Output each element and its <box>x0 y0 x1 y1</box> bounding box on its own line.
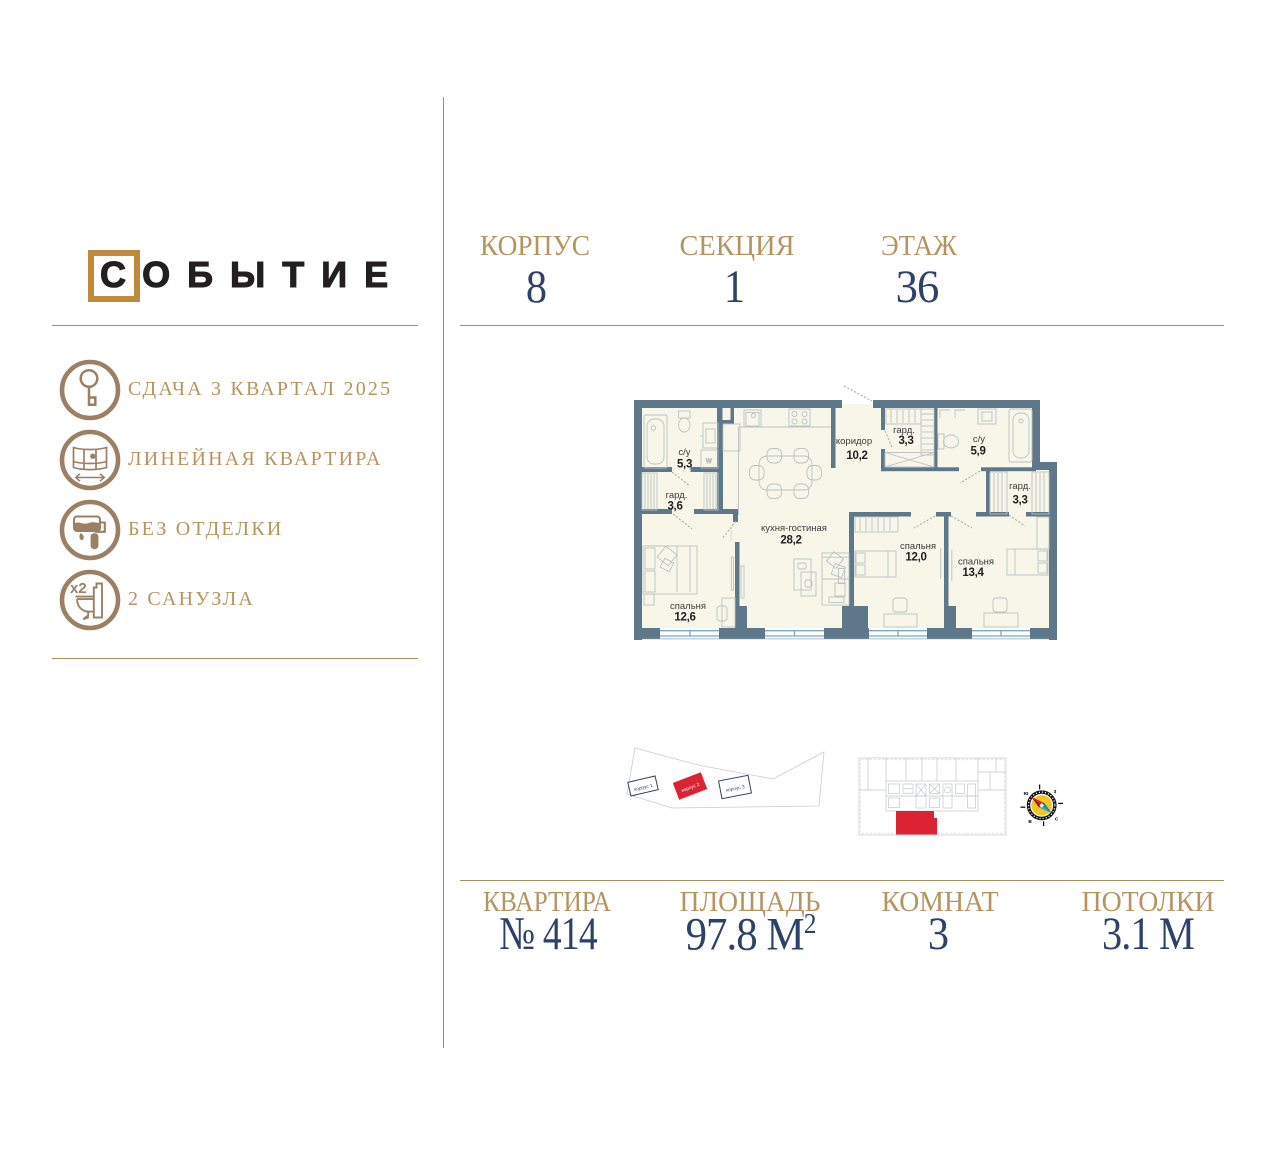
svg-text:спальня: спальня <box>958 557 994 568</box>
svg-text:гард.: гард. <box>666 490 688 501</box>
svg-text:с/у: с/у <box>973 434 985 445</box>
svg-text:28,2: 28,2 <box>780 535 801 547</box>
svg-text:3,3: 3,3 <box>1012 495 1027 507</box>
svg-text:3,6: 3,6 <box>667 501 682 513</box>
svg-text:12,6: 12,6 <box>674 612 695 624</box>
svg-text:5,3: 5,3 <box>677 459 692 471</box>
svg-text:x2: x2 <box>70 580 87 597</box>
svg-text:w: w <box>705 456 712 465</box>
svg-text:коридор: коридор <box>836 436 872 447</box>
svg-text:кухня-гостиная: кухня-гостиная <box>761 523 827 534</box>
svg-text:10,2: 10,2 <box>846 450 867 462</box>
svg-text:5,9: 5,9 <box>970 446 985 458</box>
svg-text:3,3: 3,3 <box>898 435 913 447</box>
svg-text:спальня: спальня <box>670 601 706 612</box>
svg-text:з: з <box>1054 789 1057 795</box>
svg-text:12,0: 12,0 <box>905 552 926 564</box>
svg-text:с: с <box>1055 817 1059 823</box>
svg-text:спальня: спальня <box>900 541 936 552</box>
svg-text:с/у: с/у <box>678 447 690 458</box>
svg-text:гард.: гард. <box>1009 481 1031 492</box>
svg-text:в: в <box>1028 819 1032 825</box>
svg-text:13,4: 13,4 <box>962 567 984 579</box>
svg-text:ю: ю <box>1024 791 1029 797</box>
